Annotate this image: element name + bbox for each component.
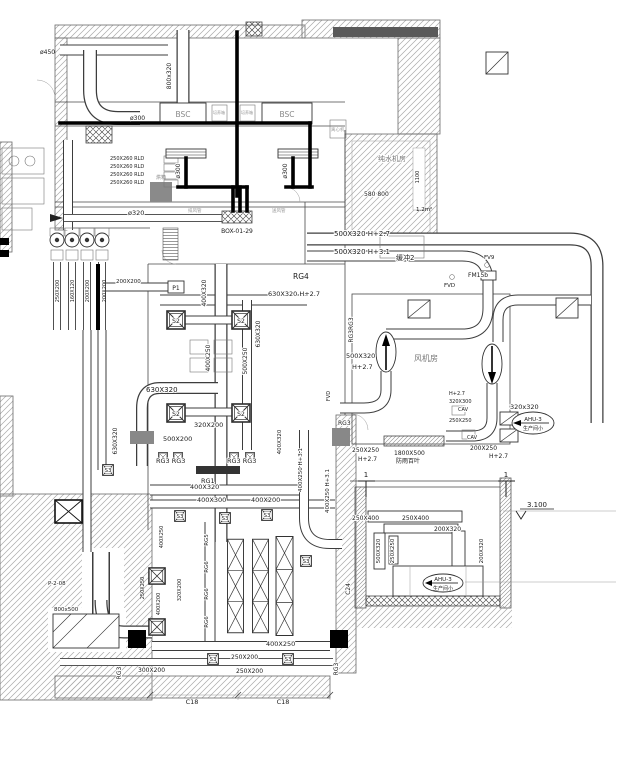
duct-size-label: 200X200 (116, 279, 141, 285)
grille-tag: RG6 (204, 561, 210, 573)
diffuser-tag: S3 (210, 657, 217, 663)
duct-size-label: 250X400 (352, 515, 379, 522)
louver-grille (163, 228, 178, 260)
drawing-canvas: ø450 800x320 BSC BSC ø300 ø300 ø300 ø320… (0, 0, 618, 763)
equipment-tag: AHU-3 (524, 417, 542, 423)
annotation-label: 排风管 (188, 207, 202, 214)
duct-size-label: 200X200 (102, 280, 108, 303)
lab-bench (276, 537, 293, 636)
diffuser-tag: S3 (105, 468, 112, 474)
level-mark: 3.100 (527, 501, 547, 509)
duct-size-label: 500X200 (163, 435, 192, 443)
radiator (166, 149, 318, 158)
duct-size-label: 400X320 (190, 483, 219, 491)
rain-louver (384, 436, 444, 446)
equipment-tag: BOX-01-29 (221, 228, 253, 235)
hvac-plan-drawing: ø450 800x320 BSC BSC ø300 ø300 ø300 ø320… (0, 0, 618, 763)
duct-size-label: 630X320 H+2.7 (268, 290, 320, 298)
duct-size-label: 400X300 (197, 496, 226, 504)
duct-size-label: 160X120 (70, 280, 76, 303)
duct-size-label: 320X200 (194, 421, 223, 429)
duct-size-label: 250X250 (390, 538, 396, 563)
grille-tag: RG3 RG3 (227, 457, 256, 465)
duct-size-label: 800x500 (54, 607, 79, 613)
equipment-tag: AHU-3 (434, 577, 452, 583)
duct-size-label: 250X200 (236, 668, 263, 675)
duct-size-label: 200X320 (479, 538, 485, 563)
duct-size-label: ø320 (128, 209, 144, 217)
riser-pipe (96, 264, 100, 330)
room-label: 培养箱 (213, 109, 225, 115)
duct-size-label: 800x320 (166, 63, 173, 90)
dim-label: C18 (277, 698, 290, 706)
wall-grille (86, 126, 112, 143)
duct-size-label: ø450 (40, 49, 55, 56)
grille-tag: RG6 (204, 588, 210, 600)
section-mark: 1 (504, 471, 508, 479)
diffuser-tag: S2 (172, 411, 180, 418)
room-label: 培养箱 (241, 109, 253, 115)
pipe-size-label: ø300 (282, 163, 289, 178)
diffuser-tag: S2 (237, 411, 245, 418)
diffuser-tag: S3 (222, 516, 229, 522)
dim-label: C18 (186, 698, 199, 706)
grille-tag: RG3 (338, 420, 351, 427)
duct-size-label: 500X320 H+2.7 (334, 230, 390, 238)
duct-size-label: 250X260 RLD (110, 172, 144, 178)
duct-size-label: H+2.7 (358, 456, 377, 463)
diffuser-tag: S2 (172, 318, 180, 325)
diffuser-tag: S3 (285, 657, 292, 663)
duct-size-label: 500X320 (376, 538, 382, 563)
duct-size-label: 630X320 (255, 320, 262, 347)
duct-size-label: 200X320 (434, 526, 461, 533)
wall-solid-band (333, 27, 438, 37)
equipment-tag: CAV (467, 435, 478, 441)
duct-size-label: 500X320 (346, 352, 375, 360)
duct-size-label: 1800X500 (394, 450, 425, 457)
duct-size-label: 400X320 (277, 429, 283, 454)
fan-symbol (376, 332, 502, 384)
pipe-size-label: ø300 (175, 163, 182, 178)
duct-size-label: 500X320 H+3.1 (334, 248, 390, 256)
shaft (332, 428, 350, 446)
duct-size-label: 400X320 (201, 279, 208, 306)
duct-size-label: H+2.7 (489, 453, 508, 460)
room-label: 风机房 (414, 353, 438, 363)
column (128, 630, 146, 648)
section-cut-mark (358, 481, 515, 497)
oven-box (150, 182, 172, 202)
duct-size-label: H+2.7 (449, 391, 465, 397)
elevation-triangle-icon (516, 511, 526, 519)
floor-slab (366, 596, 500, 606)
duct-size-label: 320x320 (510, 403, 539, 411)
room-label: BSC (175, 110, 190, 119)
grille-tag: RG6 (204, 616, 210, 628)
duct-size-label: 250X250 (449, 418, 472, 424)
diffuser-tag: S3 (303, 559, 310, 565)
equipment-tag: FVD (444, 283, 455, 289)
column (330, 630, 348, 648)
inline-fan (50, 228, 109, 260)
legend-box (486, 52, 508, 74)
room-label: BSC (279, 110, 294, 119)
grille-tag: RG5 (204, 534, 210, 546)
duct-size-label: 630X320 (146, 386, 178, 394)
duct-size-label: 250X200 (55, 280, 61, 303)
duct-size-label: 250X200 (231, 654, 258, 661)
equipment-tag: FM15b (468, 272, 488, 279)
dim-label: C24 (345, 583, 352, 595)
equipment-tag: P1 (172, 285, 180, 292)
grille-tag: RG3 RG3 (156, 457, 185, 465)
room-label: 烘箱 (156, 174, 166, 181)
duct-size-label: 630X320 (112, 427, 119, 454)
duct-size-label: 400X250 H+3.1 (325, 469, 331, 513)
dim-label: 1100 (415, 171, 421, 184)
exhaust-louver (53, 614, 119, 648)
grille-tag: RG3 (333, 663, 340, 676)
equipment-tag: 生产间小 (523, 425, 543, 432)
annotation-label: 送风管 (272, 207, 286, 214)
section-mark: 1 (364, 471, 368, 479)
room-label: 离心机 (331, 126, 345, 133)
duct-size-label: 200X200 (85, 280, 91, 303)
wall-grille (246, 22, 262, 36)
duct-size-label: 250X260 RLD (110, 180, 144, 186)
diffuser-tag: S3 (264, 513, 271, 519)
duct-size-label: 400X200 (251, 496, 280, 504)
duct-size-label: 250X400 (402, 515, 429, 522)
diffuser-tag: S2 (237, 318, 245, 325)
rg1-unit (196, 466, 240, 474)
duct-size-label: 500X250 (242, 347, 249, 374)
equipment-tag: 生产间小 (433, 585, 453, 592)
grille-tag: RG4 (293, 272, 309, 281)
valve-icon (450, 275, 455, 280)
duct-size-label: 300X200 (138, 667, 165, 674)
diffuser-tag: S3 (177, 514, 184, 520)
duct-size-label: 250X250 (140, 577, 146, 600)
duct-size-label: 400X250 (266, 640, 295, 648)
duct-size-label: 200X250 (470, 445, 497, 452)
lab-bench (227, 539, 243, 633)
duct-size-label: 250X260 RLD (110, 164, 144, 170)
duct-size-label: 400X200 (156, 593, 162, 616)
duct-size-label: 250X250 (352, 447, 379, 454)
duct-size-label: 400X250 (205, 344, 212, 371)
exhaust-grille (55, 500, 82, 523)
shaft (130, 431, 154, 444)
room-label: 纯水机房 (378, 154, 406, 163)
duct-size-label: 400X250 (159, 526, 165, 549)
equipment-tag: P-2-08 (48, 581, 66, 587)
dim-label: 580 800 (364, 191, 389, 198)
duct-size-label: 320X300 (449, 399, 472, 405)
equipment-tag: CAV (458, 407, 469, 413)
grille-tag: RG3RG3 (348, 317, 355, 342)
grille-tag: RG3 (116, 667, 123, 680)
room-label: 防雨百叶 (396, 457, 420, 465)
pipe-size-label: ø300 (130, 115, 145, 122)
duct-size-label: 250X260 RLD (110, 156, 144, 162)
duct-size-label: 400X250 H+3.1 (298, 448, 304, 492)
duct-size-label: H+2.7 (352, 363, 373, 371)
room-label: 缓冲2 (396, 253, 414, 262)
equipment-tag: FV9 (484, 255, 495, 261)
lab-bench (252, 539, 268, 633)
dim-label: 1.2m² (416, 206, 432, 213)
equipment-tag: FVD (326, 391, 332, 401)
duct-size-label: 320X200 (177, 579, 183, 602)
